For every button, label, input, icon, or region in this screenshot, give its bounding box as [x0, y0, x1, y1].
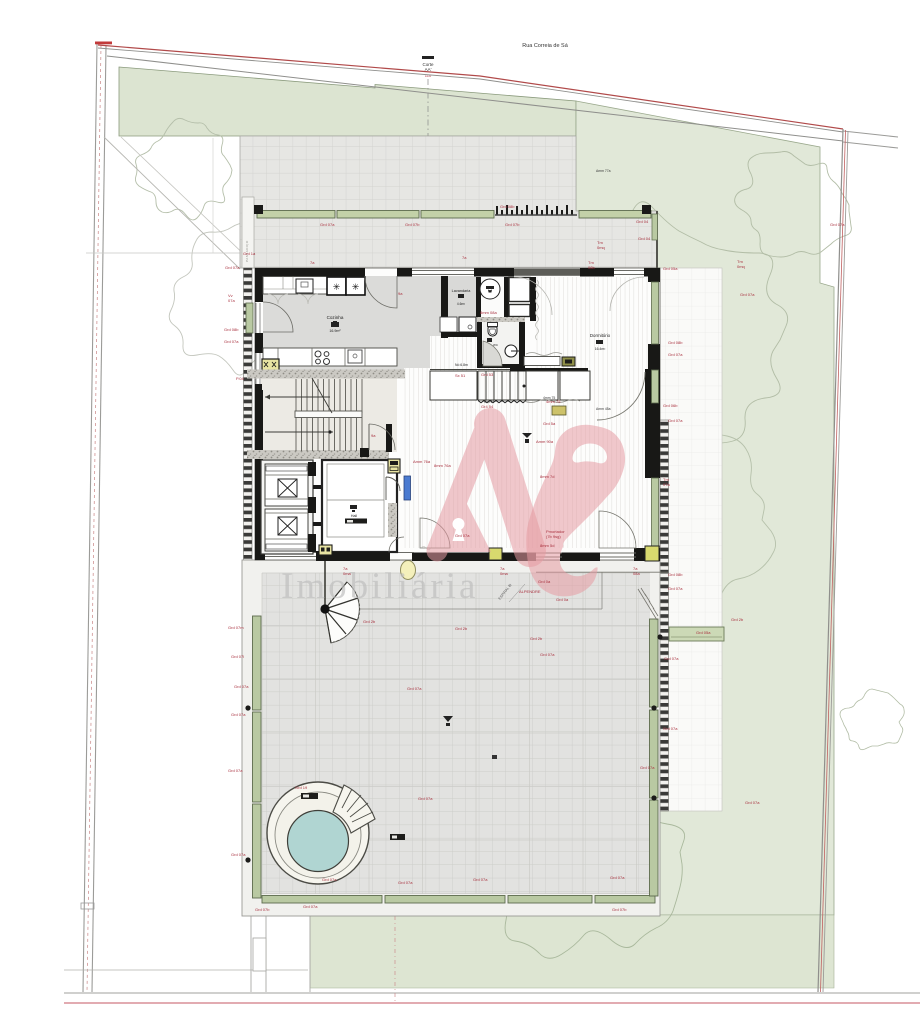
svg-text:Grd 0a: Grd 0a — [538, 579, 551, 584]
svg-text:Grd 07a: Grd 07a — [398, 880, 413, 885]
svg-text:Grd 53: Grd 53 — [481, 372, 494, 377]
svg-text:0mq: 0mq — [597, 245, 605, 250]
svg-text:Grd 06b: Grd 06b — [663, 403, 678, 408]
svg-text:4.6m²: 4.6m² — [457, 302, 465, 306]
svg-text:0mq: 0mq — [737, 264, 745, 269]
svg-text:Grd 05a: Grd 05a — [663, 266, 678, 271]
svg-text:Grd 07a: Grd 07a — [668, 352, 683, 357]
svg-text:07a: 07a — [663, 482, 670, 487]
svg-text:Grd 07a: Grd 07a — [455, 533, 470, 538]
svg-text:Grd 07a: Grd 07a — [418, 796, 433, 801]
svg-text:8mm 76a: 8mm 76a — [434, 463, 451, 468]
svg-text:Nó 6.8m: Nó 6.8m — [455, 363, 468, 367]
svg-text:Grd 0a: Grd 0a — [556, 597, 569, 602]
svg-text:Grd 07m: Grd 07m — [228, 625, 244, 630]
svg-text:Grd 07a: Grd 07a — [745, 800, 760, 805]
svg-text:Grd 07b: Grd 07b — [405, 222, 420, 227]
svg-text:16.9m²: 16.9m² — [329, 329, 341, 333]
svg-text:Grd 07a: Grd 07a — [663, 726, 678, 731]
svg-text:9a: 9a — [371, 433, 376, 438]
svg-text:Grd 07a: Grd 07a — [407, 686, 422, 691]
svg-text:Grd 1a: Grd 1a — [243, 251, 256, 256]
svg-text:Grd 19: Grd 19 — [295, 785, 308, 790]
svg-text:Grd 08b: Grd 08b — [668, 572, 683, 577]
svg-text:Amm 90a: Amm 90a — [536, 439, 554, 444]
svg-text:9a: 9a — [398, 291, 403, 296]
svg-text:Grd 2b: Grd 2b — [731, 617, 744, 622]
svg-text:Grd 07a: Grd 07a — [610, 875, 625, 880]
svg-text:Grd 07a: Grd 07a — [540, 652, 555, 657]
svg-text:Grd 07a: Grd 07a — [640, 765, 655, 770]
svg-text:Amm 77a: Amm 77a — [596, 169, 611, 173]
svg-text:Grd 5a: Grd 5a — [543, 421, 556, 426]
svg-text:Gr4 54: Gr4 54 — [481, 404, 494, 409]
svg-text:Grd 07a: Grd 07a — [225, 265, 240, 270]
svg-text:Grd 07l: Grd 07l — [231, 654, 244, 659]
svg-text:Grd 08b: Grd 08b — [668, 340, 683, 345]
svg-text:Amm 76a: Amm 76a — [413, 459, 431, 464]
svg-text:Grd 07a: Grd 07a — [320, 222, 335, 227]
svg-text:16.4m²: 16.4m² — [595, 347, 606, 351]
svg-text:Grd 2b: Grd 2b — [363, 619, 376, 624]
svg-text:Grd 07a: Grd 07a — [234, 684, 249, 689]
svg-text:Grd 07a: Grd 07a — [303, 904, 318, 909]
svg-text:Hall: Hall — [351, 514, 357, 518]
svg-text:Grd 07a: Grd 07a — [473, 877, 488, 882]
svg-text:Rua Correia de Sá: Rua Correia de Sá — [522, 43, 568, 49]
svg-text:Grd 04: Grd 04 — [638, 236, 651, 241]
svg-text:8mm 7d: 8mm 7d — [540, 474, 554, 479]
svg-text:7a: 7a — [462, 255, 467, 260]
svg-text:Grd 07a: Grd 07a — [231, 712, 246, 717]
svg-text:08b: 08b — [588, 265, 595, 270]
svg-text:ALPENDRE: ALPENDRE — [519, 589, 541, 594]
svg-text:Grd 07a: Grd 07a — [740, 292, 755, 297]
svg-text:110: 110 — [425, 73, 432, 78]
svg-text:Gr4 54: Gr4 54 — [484, 400, 494, 404]
svg-text:Grd 07a: Grd 07a — [668, 418, 683, 423]
svg-text:Grd 07a: Grd 07a — [228, 768, 243, 773]
svg-text:Grd 07a: Grd 07a — [668, 586, 683, 591]
svg-text:0ma: 0ma — [500, 571, 509, 576]
svg-text:Imobiliária: Imobiliária — [281, 566, 478, 607]
svg-text:08a: 08a — [633, 571, 640, 576]
svg-text:07a: 07a — [228, 298, 235, 303]
svg-text:8mm 5d: 8mm 5d — [540, 543, 554, 548]
svg-text:Grd 2b: Grd 2b — [530, 636, 543, 641]
svg-text:Grd 07a: Grd 07a — [830, 222, 845, 227]
svg-text:Grd 07b: Grd 07b — [612, 907, 627, 912]
svg-text:Grd 2b: Grd 2b — [455, 626, 468, 631]
svg-text:Lavandaria: Lavandaria — [452, 289, 472, 293]
svg-text:WC: WC — [493, 343, 499, 347]
svg-text:Grd 07b: Grd 07b — [505, 222, 520, 227]
svg-text:7a: 7a — [310, 260, 315, 265]
svg-text:Dormitório: Dormitório — [590, 333, 611, 338]
svg-text:8mm 08a: 8mm 08a — [480, 310, 497, 315]
svg-text:Grd 07b: Grd 07b — [255, 907, 270, 912]
svg-text:Grd 08b: Grd 08b — [500, 204, 515, 209]
svg-text:Grd 08b: Grd 08b — [224, 327, 239, 332]
svg-text:Amm 45a: Amm 45a — [596, 407, 611, 411]
svg-text:0ma: 0ma — [343, 571, 352, 576]
svg-text:Grd 07a: Grd 07a — [664, 656, 679, 661]
svg-text:Cozinha: Cozinha — [327, 315, 344, 320]
svg-text:(7b 9sg): (7b 9sg) — [546, 534, 561, 539]
svg-text:4mm 75: 4mm 75 — [543, 396, 555, 400]
svg-text:✳: ✳ — [333, 282, 341, 292]
svg-text:Grd 07a: Grd 07a — [224, 339, 239, 344]
svg-text:P.04: P.04 — [236, 376, 244, 381]
svg-text:Grd 07a: Grd 07a — [322, 877, 337, 882]
svg-text:Sx 51: Sx 51 — [455, 373, 466, 378]
svg-text:✳: ✳ — [352, 282, 360, 292]
svg-text:Grd 07a: Grd 07a — [231, 852, 246, 857]
svg-text:Grd 04: Grd 04 — [636, 219, 649, 224]
svg-text:Grd 05a: Grd 05a — [696, 630, 711, 635]
